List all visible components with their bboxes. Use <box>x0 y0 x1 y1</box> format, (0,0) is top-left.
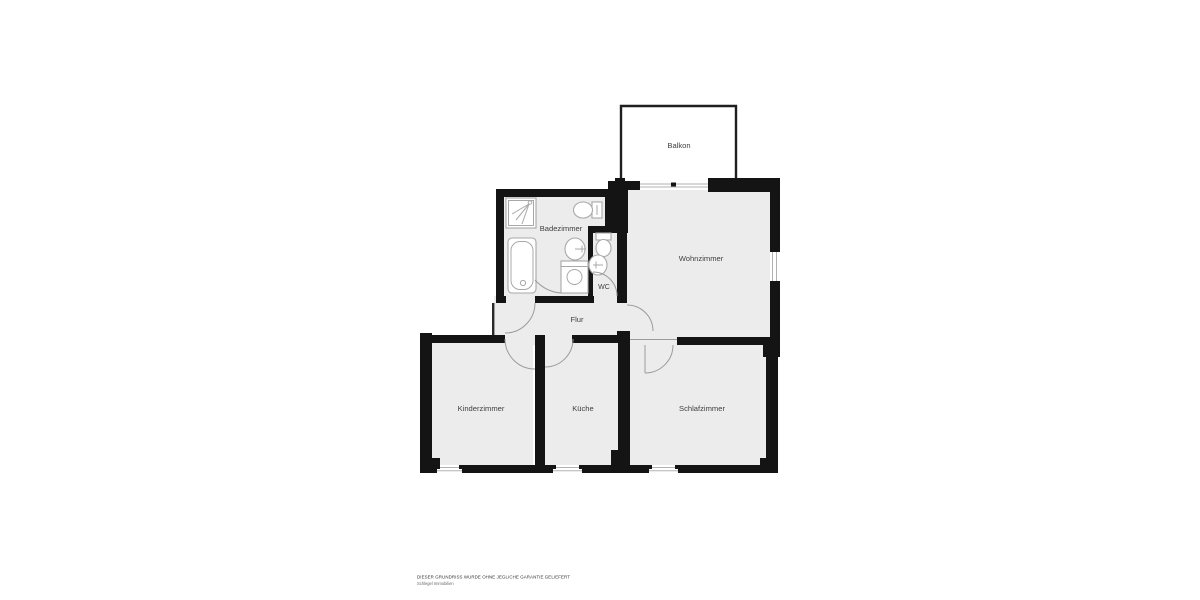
floor-plan-canvas: Balkon Badezimmer WC Wohnzimmer Flur Kin… <box>0 0 1200 600</box>
sink-fixture-bad <box>565 238 586 260</box>
balcony-door <box>640 181 708 190</box>
window-schlafzimmer <box>649 465 678 473</box>
room-label-flur: Flur <box>570 315 584 324</box>
room-label-wohnzimmer: Wohnzimmer <box>679 254 724 263</box>
room-label-kueche: Küche <box>572 404 594 413</box>
room-label-schlafzimmer: Schlafzimmer <box>679 404 725 413</box>
disclaimer-line: DIESER GRUNDRISS WURDE OHNE JEGLICHE GAR… <box>417 575 570 580</box>
agency-line: Schlegel Immobilien <box>417 581 454 586</box>
shower-fixture <box>506 198 536 228</box>
room-label-wc: WC <box>598 284 610 291</box>
room-label-balkon: Balkon <box>667 141 690 150</box>
entry-door <box>492 303 494 335</box>
toilet-fixture-bad <box>574 202 603 218</box>
toilet-fixture-wc <box>596 233 611 257</box>
washing-machine-fixture <box>561 261 588 293</box>
watermark: DIESER GRUNDRISS WURDE OHNE JEGLICHE GAR… <box>417 575 570 587</box>
window-kinderzimmer <box>437 465 462 473</box>
window-kueche <box>553 465 582 473</box>
floor-wohnzimmer <box>627 189 770 337</box>
window-wohnzimmer <box>770 252 780 281</box>
bathtub-fixture <box>508 238 536 293</box>
room-label-kinderzimmer: Kinderzimmer <box>458 404 505 413</box>
room-label-badezimmer: Badezimmer <box>540 224 583 233</box>
floor-plan: Balkon Badezimmer WC Wohnzimmer Flur Kin… <box>0 0 1200 600</box>
